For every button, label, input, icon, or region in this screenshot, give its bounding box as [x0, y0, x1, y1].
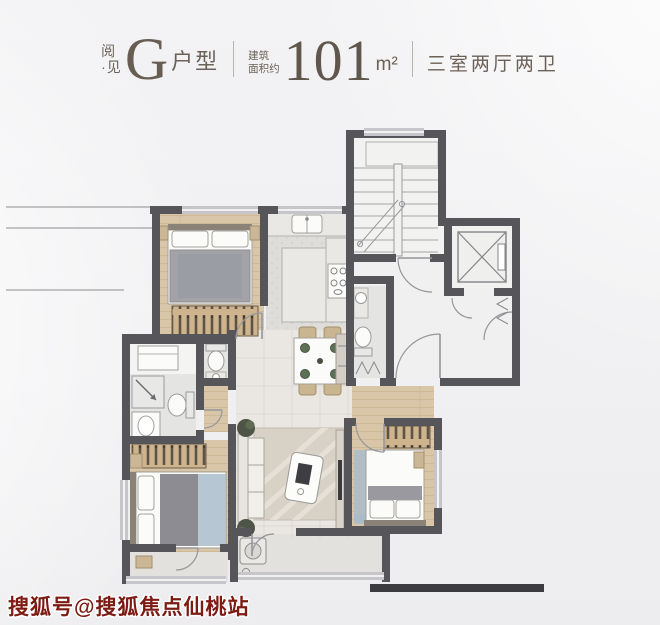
nightstand-icon: [250, 226, 260, 240]
dimension-lines: [6, 207, 152, 290]
elevator-cab-icon: [458, 232, 506, 282]
tv-icon: [338, 460, 342, 500]
pillow-icon: [172, 231, 208, 247]
lower-wall-bar: [370, 584, 544, 592]
nightstand-icon: [414, 452, 424, 468]
pillow-icon: [138, 514, 154, 548]
wardrobe-icon: [172, 306, 258, 336]
nightstand-icon: [130, 454, 142, 468]
toilet-icon: [355, 327, 371, 347]
planter-icon: [136, 556, 152, 568]
wardrobe-icon: [132, 444, 206, 468]
pillow-icon: [138, 476, 154, 510]
watermark-text: 搜狐号@搜狐焦点仙桃站: [8, 591, 249, 621]
pillow-icon: [396, 500, 420, 518]
toilet-icon: [168, 394, 186, 416]
wardrobe-icon: [384, 426, 430, 448]
island-counter-icon: [282, 248, 330, 322]
suite-corridor-floor: [204, 386, 228, 432]
rug-icon: [354, 450, 366, 522]
sofa-icon: [238, 434, 248, 522]
bathroom2-fixtures: [206, 344, 226, 382]
pillow-icon: [370, 500, 394, 518]
wash-basin-icon: [356, 293, 367, 304]
floorplan: [0, 0, 660, 625]
toilet-icon: [208, 351, 224, 371]
living-room-furniture: [237, 418, 360, 537]
pillow-icon: [212, 231, 248, 247]
utility-fixtures: [138, 346, 178, 370]
page-background: 阅 ·见 G 户型 建筑 面积约 101 m² 三室两厅两卫: [0, 0, 660, 625]
